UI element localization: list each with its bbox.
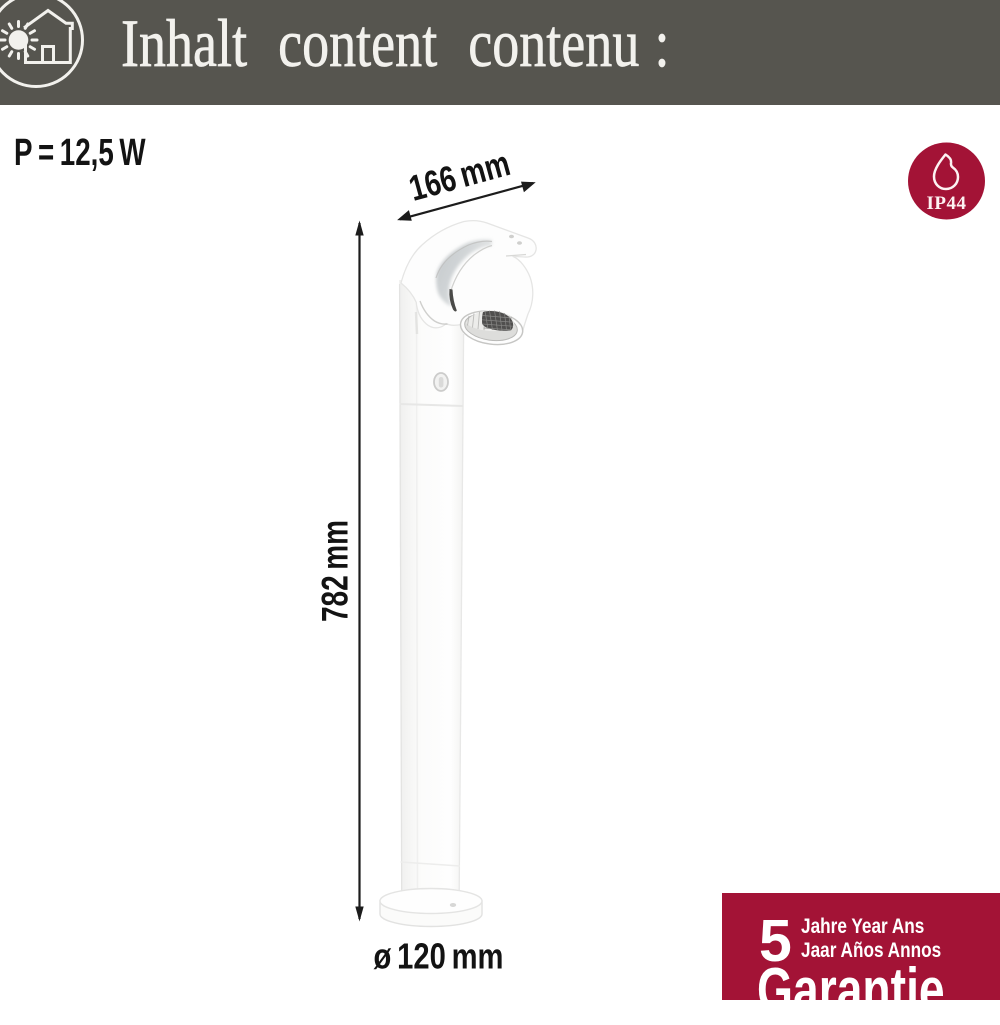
- svg-text:ø 120 mm: ø 120 mm: [374, 936, 504, 977]
- svg-text:782 mm: 782 mm: [314, 520, 356, 622]
- svg-text:166 mm: 166 mm: [405, 143, 514, 209]
